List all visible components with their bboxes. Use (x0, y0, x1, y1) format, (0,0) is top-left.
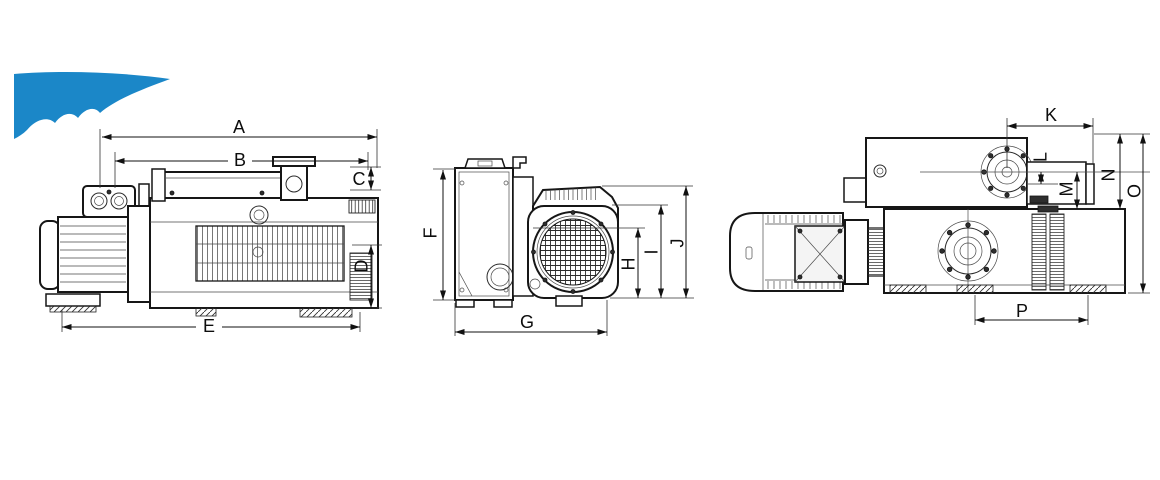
dim-label-f: F (420, 228, 440, 239)
pump-dimensional-drawing: A B C D E (0, 0, 1160, 480)
dim-label-d: D (351, 260, 371, 273)
dim-label-h: H (618, 258, 638, 271)
side-pump-body (150, 157, 378, 317)
dim-p: P (975, 295, 1088, 325)
side-top-vent (349, 200, 375, 213)
end-fan-shroud (528, 187, 618, 306)
dim-label-o: O (1124, 184, 1144, 198)
dim-label-g: G (520, 312, 534, 332)
side-motor (40, 217, 128, 312)
dim-c: C (350, 167, 381, 190)
side-coupling (128, 206, 152, 302)
dim-label-m: M (1056, 182, 1076, 197)
plan-coupling (845, 220, 868, 284)
dim-label-j: J (667, 239, 687, 248)
dim-label-n: N (1098, 169, 1118, 182)
dim-label-i: I (641, 249, 661, 254)
plan-view: K L M N O P (730, 105, 1150, 325)
side-cooler-grid (196, 226, 344, 281)
dim-g: G (455, 300, 607, 336)
plan-heat-exchanger (1032, 214, 1046, 290)
dim-f: F (420, 169, 456, 300)
plan-adapter (868, 228, 884, 276)
side-view: A B C D E (40, 117, 382, 336)
dim-label-c: C (353, 169, 366, 189)
blue-swoosh-logo (14, 72, 170, 139)
dim-label-k: K (1045, 105, 1057, 125)
plan-pump-body (884, 209, 1125, 293)
dim-o: O (1124, 134, 1150, 293)
dim-label-p: P (1016, 301, 1028, 321)
dim-i: I (612, 205, 668, 298)
drawing-svg: A B C D E (0, 0, 1160, 480)
dim-label-a: A (233, 117, 245, 137)
dim-label-b: B (234, 150, 246, 170)
plan-exhaust-box (844, 138, 1094, 212)
end-view: F G H I J (420, 157, 694, 336)
dim-label-e: E (203, 316, 215, 336)
dim-label-l: L (1030, 152, 1050, 162)
plan-motor (730, 213, 845, 291)
